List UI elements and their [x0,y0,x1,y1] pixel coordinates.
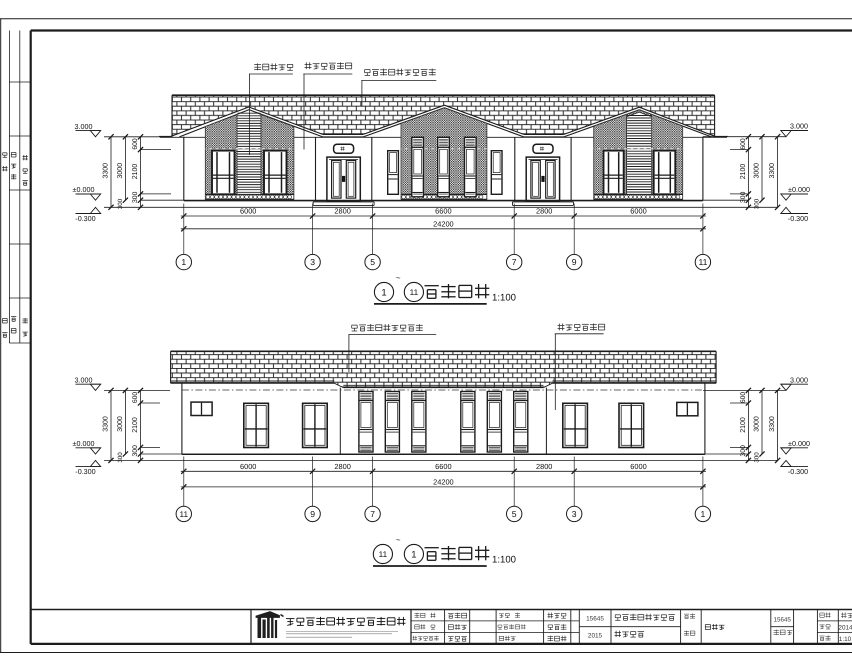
svg-text:3000: 3000 [117,163,124,179]
svg-text:5: 5 [370,257,375,267]
svg-text:2800: 2800 [536,462,552,471]
svg-text:2800: 2800 [334,462,350,471]
svg-text:2100: 2100 [740,417,747,433]
svg-text:300: 300 [132,191,139,203]
svg-text:3000: 3000 [754,163,761,179]
svg-text:6000: 6000 [630,207,646,216]
svg-text:1: 1 [381,287,386,298]
svg-text:6000: 6000 [240,207,256,216]
svg-text:±0.000: ±0.000 [73,439,95,448]
svg-text:300: 300 [754,452,761,463]
svg-text:3.000: 3.000 [790,375,808,384]
svg-text:±0.000: ±0.000 [788,439,810,448]
svg-text:3.000: 3.000 [75,122,93,131]
svg-text:15645: 15645 [586,616,604,623]
svg-text:11: 11 [180,510,189,519]
svg-text:2100: 2100 [740,164,747,180]
svg-text:3300: 3300 [769,416,776,432]
svg-text:7: 7 [512,257,517,267]
svg-text:300: 300 [132,445,139,457]
svg-text:2800: 2800 [334,207,350,216]
svg-text:11: 11 [698,257,707,267]
svg-text:7: 7 [370,509,375,519]
svg-text:-0.300: -0.300 [788,214,808,223]
svg-text:600: 600 [740,138,747,150]
svg-text:-0.300: -0.300 [788,467,808,476]
svg-text:2014: 2014 [838,625,852,632]
svg-text:15645: 15645 [774,617,792,624]
svg-text:1:10: 1:10 [839,636,852,643]
svg-text:~: ~ [396,274,401,283]
svg-text:300: 300 [740,445,747,457]
svg-text:300: 300 [740,191,747,203]
svg-text:1:100: 1:100 [492,555,516,566]
svg-text:1: 1 [411,549,416,560]
svg-text:1: 1 [701,509,706,519]
svg-text:600: 600 [132,392,139,404]
svg-text:24200: 24200 [433,219,454,228]
svg-text:11: 11 [410,288,419,297]
svg-text:5: 5 [512,509,517,519]
svg-text:11: 11 [379,550,388,559]
svg-text:600: 600 [740,392,747,404]
svg-text:6000: 6000 [630,462,646,471]
svg-text:24200: 24200 [433,478,454,487]
svg-text:3: 3 [310,257,315,267]
svg-text:2800: 2800 [536,207,552,216]
svg-text:1: 1 [181,257,186,267]
svg-text:300: 300 [117,198,124,209]
svg-text:300: 300 [117,452,124,463]
svg-text:~: ~ [396,536,401,545]
svg-text:3.000: 3.000 [790,122,808,131]
svg-text:-0.300: -0.300 [75,214,95,223]
svg-text:3300: 3300 [769,163,776,179]
svg-text:600: 600 [132,138,139,150]
svg-text:2100: 2100 [132,417,139,433]
svg-text:6600: 6600 [435,462,451,471]
svg-text:1:100: 1:100 [492,293,516,304]
svg-text:9: 9 [572,257,577,267]
svg-text:2015: 2015 [588,633,603,640]
svg-text:3: 3 [572,509,577,519]
svg-text:±0.000: ±0.000 [788,185,810,194]
svg-text:6000: 6000 [240,462,256,471]
svg-text:9: 9 [310,509,315,519]
svg-text:6600: 6600 [435,207,451,216]
svg-text:±0.000: ±0.000 [73,185,95,194]
svg-text:3000: 3000 [117,416,124,432]
svg-text:3000: 3000 [754,416,761,432]
svg-text:-0.300: -0.300 [75,467,95,476]
svg-text:300: 300 [754,198,761,209]
svg-text:3300: 3300 [103,163,110,179]
svg-text:2100: 2100 [132,164,139,180]
svg-text:3300: 3300 [103,416,110,432]
svg-text:3.000: 3.000 [75,375,93,384]
